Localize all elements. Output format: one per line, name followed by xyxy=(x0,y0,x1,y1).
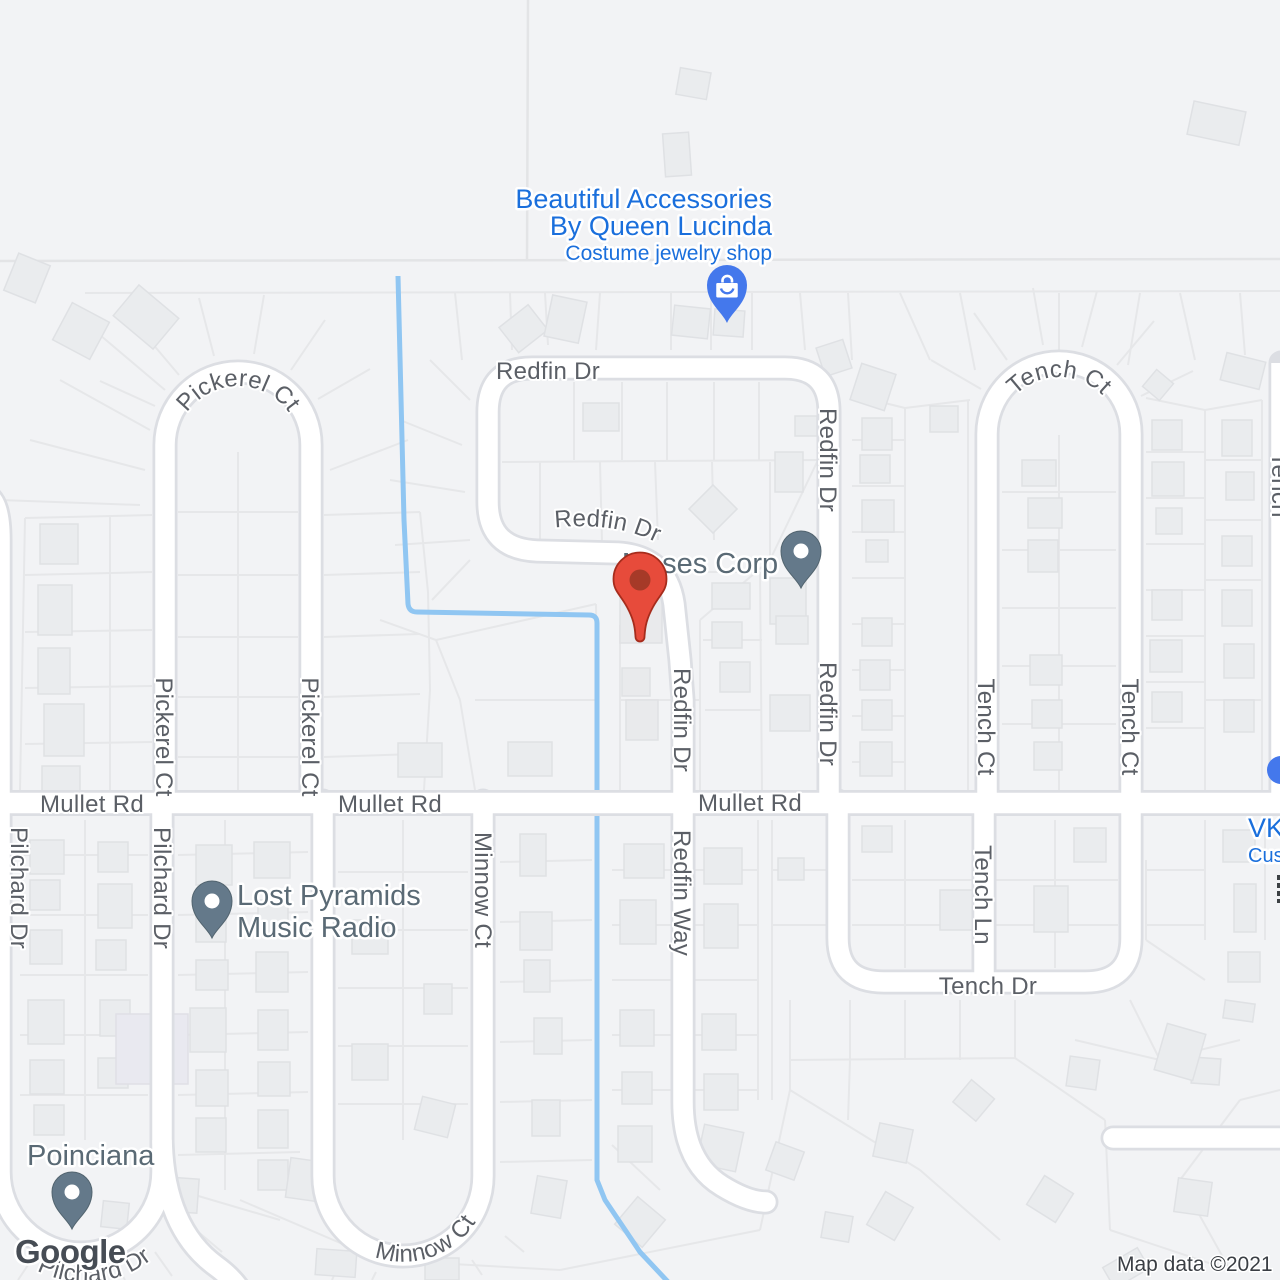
svg-text:Map data ©2021: Map data ©2021 xyxy=(1117,1253,1273,1276)
svg-text:Lost Pyramids: Lost Pyramids xyxy=(237,880,421,912)
svg-text:Tench Ct: Tench Ct xyxy=(972,678,999,775)
svg-text:Redfin Dr: Redfin Dr xyxy=(496,358,600,385)
svg-text:Beautiful Accessories: Beautiful Accessories xyxy=(515,184,772,214)
svg-text:Redfin Dr: Redfin Dr xyxy=(668,668,695,772)
svg-text:Costume jewelry shop: Costume jewelry shop xyxy=(565,242,772,265)
svg-text:Tench: Tench xyxy=(1266,452,1280,518)
svg-text:Google: Google xyxy=(15,1233,126,1270)
svg-text:Poinciana: Poinciana xyxy=(27,1140,155,1172)
svg-text:Mullet Rd: Mullet Rd xyxy=(698,790,802,817)
svg-text:Redfin Dr: Redfin Dr xyxy=(814,408,841,512)
svg-text:Tench Ct: Tench Ct xyxy=(1116,678,1143,775)
svg-text:Music Radio: Music Radio xyxy=(237,912,397,944)
svg-text:VK: VK xyxy=(1248,813,1280,843)
svg-text:Tench Dr: Tench Dr xyxy=(939,973,1037,1000)
svg-text:Pilchard Dr: Pilchard Dr xyxy=(148,827,175,949)
svg-text:Pickerel Ct: Pickerel Ct xyxy=(150,677,177,796)
svg-text:Redfin Way: Redfin Way xyxy=(668,830,695,956)
svg-text:Minnow Ct: Minnow Ct xyxy=(469,832,496,948)
svg-text:By Queen Lucinda: By Queen Lucinda xyxy=(550,211,773,241)
svg-text:Pickerel Ct: Pickerel Ct xyxy=(296,677,323,796)
svg-text:Mullet Rd: Mullet Rd xyxy=(338,791,442,818)
svg-text:Redfin Dr: Redfin Dr xyxy=(814,662,841,766)
svg-text:Tench Ln: Tench Ln xyxy=(969,845,996,945)
svg-text:Mullet Rd: Mullet Rd xyxy=(40,791,144,818)
svg-text:Cus: Cus xyxy=(1248,845,1280,867)
svg-text:Pilchard Dr: Pilchard Dr xyxy=(5,827,32,949)
